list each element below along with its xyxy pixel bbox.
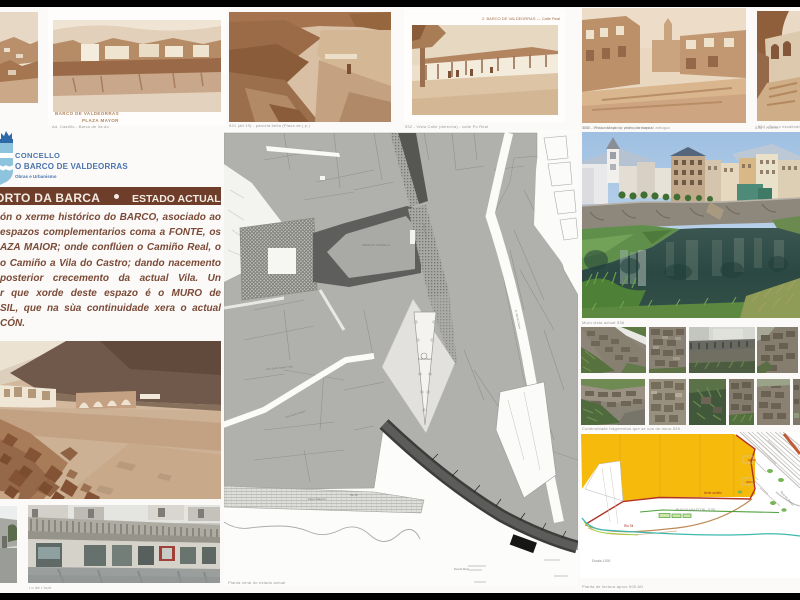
svg-text:Praza Maior: Praza Maior: [418, 357, 432, 361]
svg-text:Escala 1:500: Escala 1:500: [592, 559, 611, 563]
svg-text:Paseo Malecon: Paseo Malecon: [308, 497, 326, 501]
svg-text:Rio Sil: Rio Sil: [350, 493, 358, 497]
svg-text:limite ambito: limite ambito: [704, 491, 722, 495]
svg-text:Rua do Muro: Rua do Muro: [454, 567, 470, 571]
svg-text:Rio Sil: Rio Sil: [624, 524, 634, 528]
svg-text:RUA DO MALECON - O SIL: RUA DO MALECON - O SIL: [676, 508, 716, 512]
svg-text:PRAZA DO CONCELLO: PRAZA DO CONCELLO: [362, 243, 390, 247]
